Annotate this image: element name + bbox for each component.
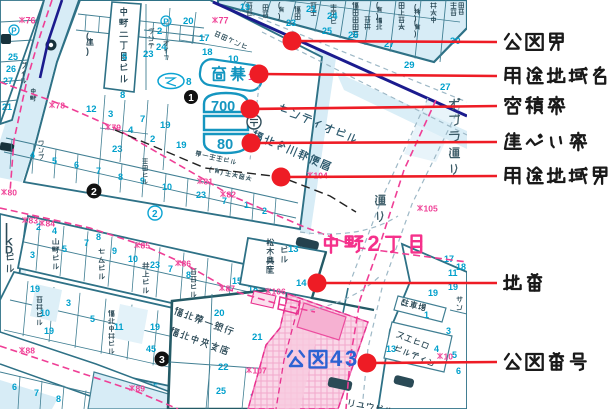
svg-text:6: 6 bbox=[74, 160, 79, 170]
svg-text:83: 83 bbox=[29, 216, 39, 226]
svg-text:): ) bbox=[86, 46, 89, 56]
svg-text:14: 14 bbox=[296, 278, 307, 289]
svg-text:7: 7 bbox=[140, 114, 145, 125]
svg-text:10: 10 bbox=[444, 352, 454, 362]
svg-text:1: 1 bbox=[424, 310, 429, 320]
svg-text:D: D bbox=[5, 244, 13, 256]
svg-text:18: 18 bbox=[202, 47, 213, 58]
svg-text:18: 18 bbox=[456, 262, 466, 272]
svg-text:3: 3 bbox=[159, 354, 165, 366]
svg-text:19: 19 bbox=[160, 120, 171, 131]
svg-text:7: 7 bbox=[168, 264, 173, 274]
svg-text:8: 8 bbox=[186, 270, 191, 280]
svg-text:3: 3 bbox=[30, 250, 35, 260]
svg-text:23: 23 bbox=[150, 260, 160, 270]
svg-text:22: 22 bbox=[218, 362, 229, 373]
svg-text:78: 78 bbox=[56, 101, 66, 111]
svg-text:25: 25 bbox=[8, 52, 18, 62]
svg-text:23: 23 bbox=[196, 190, 206, 200]
svg-text:6: 6 bbox=[456, 366, 461, 376]
svg-text:89: 89 bbox=[136, 384, 146, 394]
svg-text:25: 25 bbox=[216, 386, 226, 396]
svg-text:19: 19 bbox=[240, 2, 250, 12]
svg-text:105: 105 bbox=[424, 204, 438, 214]
svg-text:84: 84 bbox=[46, 219, 56, 229]
svg-text:13: 13 bbox=[288, 244, 299, 255]
svg-text:87: 87 bbox=[226, 284, 236, 294]
svg-text:13: 13 bbox=[386, 344, 396, 354]
svg-text:5: 5 bbox=[62, 244, 67, 254]
svg-text:19: 19 bbox=[150, 322, 160, 332]
svg-text:86: 86 bbox=[182, 259, 192, 269]
svg-text:8: 8 bbox=[96, 232, 101, 242]
svg-text:19: 19 bbox=[44, 326, 54, 336]
svg-text:8: 8 bbox=[120, 90, 125, 101]
svg-text:12: 12 bbox=[86, 104, 97, 115]
svg-text:2: 2 bbox=[152, 209, 158, 220]
svg-text:19: 19 bbox=[30, 284, 40, 294]
svg-text:24: 24 bbox=[327, 11, 338, 22]
svg-text:76: 76 bbox=[26, 16, 36, 26]
svg-text:17: 17 bbox=[199, 33, 210, 44]
svg-text:P: P bbox=[163, 18, 169, 27]
svg-text:85: 85 bbox=[141, 241, 151, 251]
svg-text:10: 10 bbox=[128, 254, 138, 264]
svg-text:3: 3 bbox=[66, 298, 71, 308]
svg-text:25: 25 bbox=[322, 26, 332, 36]
svg-text:81: 81 bbox=[204, 177, 214, 187]
svg-text:107: 107 bbox=[253, 366, 267, 376]
svg-text:79: 79 bbox=[112, 123, 122, 133]
svg-text:19: 19 bbox=[176, 140, 187, 151]
svg-text:21: 21 bbox=[306, 4, 317, 15]
svg-text:700: 700 bbox=[211, 99, 235, 115]
svg-text:26: 26 bbox=[6, 64, 16, 74]
svg-text:P: P bbox=[11, 27, 17, 36]
svg-text:20: 20 bbox=[183, 16, 194, 27]
svg-text:4: 4 bbox=[30, 150, 35, 160]
svg-text:3: 3 bbox=[446, 326, 451, 336]
svg-text:26: 26 bbox=[348, 30, 359, 41]
svg-text:21: 21 bbox=[252, 332, 263, 343]
svg-text:9: 9 bbox=[140, 176, 145, 186]
svg-text:20: 20 bbox=[214, 308, 225, 319]
svg-text:77: 77 bbox=[219, 16, 229, 26]
svg-text:5: 5 bbox=[122, 52, 128, 63]
svg-text:2: 2 bbox=[150, 134, 155, 145]
svg-text:106: 106 bbox=[272, 287, 286, 297]
svg-text:1: 1 bbox=[244, 200, 249, 210]
svg-text:2: 2 bbox=[91, 186, 97, 198]
svg-text:10: 10 bbox=[40, 308, 50, 318]
svg-text:23: 23 bbox=[286, 18, 296, 28]
svg-text:9: 9 bbox=[112, 246, 117, 256]
svg-text:80: 80 bbox=[217, 137, 233, 153]
svg-text:3: 3 bbox=[345, 346, 357, 371]
svg-text:1: 1 bbox=[188, 93, 194, 104]
svg-text:4: 4 bbox=[434, 344, 439, 354]
svg-text:8: 8 bbox=[186, 77, 192, 88]
svg-text:3: 3 bbox=[108, 109, 113, 120]
svg-text:2: 2 bbox=[262, 206, 267, 216]
svg-text:27: 27 bbox=[440, 82, 451, 93]
svg-text:5: 5 bbox=[90, 314, 95, 324]
svg-text:19: 19 bbox=[428, 288, 438, 298]
svg-text:23: 23 bbox=[143, 49, 154, 60]
svg-text:8: 8 bbox=[56, 394, 61, 404]
svg-text:82: 82 bbox=[227, 190, 237, 200]
svg-text:8: 8 bbox=[118, 172, 123, 182]
svg-text:7: 7 bbox=[84, 238, 89, 248]
svg-text:7: 7 bbox=[96, 166, 101, 176]
svg-text:6: 6 bbox=[12, 382, 17, 392]
svg-text:45: 45 bbox=[146, 344, 156, 354]
svg-text:11: 11 bbox=[114, 322, 124, 332]
svg-text:80: 80 bbox=[8, 188, 18, 198]
svg-text:4: 4 bbox=[128, 125, 134, 136]
svg-text:5: 5 bbox=[52, 156, 57, 166]
svg-text:29: 29 bbox=[404, 60, 415, 71]
svg-text:88: 88 bbox=[26, 346, 36, 356]
svg-text:2: 2 bbox=[157, 26, 162, 37]
svg-text:2: 2 bbox=[367, 231, 379, 256]
svg-text:10: 10 bbox=[162, 182, 172, 192]
svg-text:7: 7 bbox=[34, 388, 39, 398]
svg-text:4: 4 bbox=[330, 346, 343, 371]
